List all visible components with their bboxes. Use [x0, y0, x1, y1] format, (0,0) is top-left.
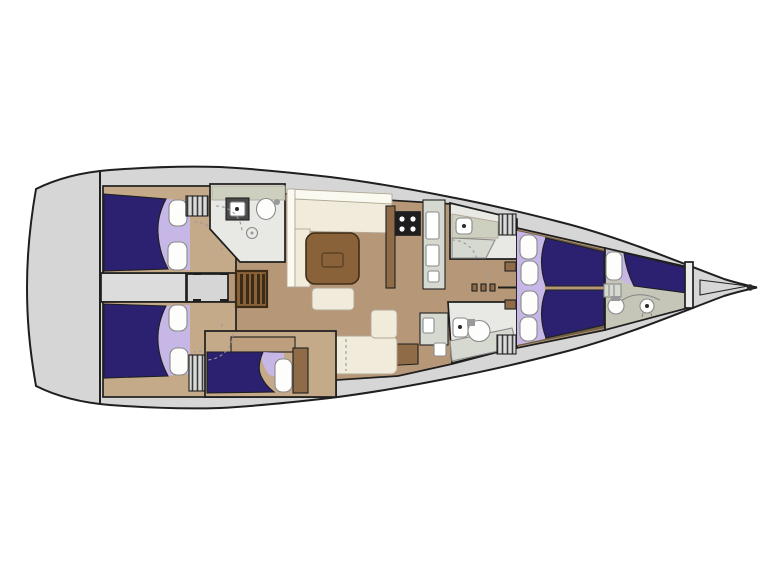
appliance-box	[434, 343, 446, 356]
appliance-box	[426, 212, 439, 239]
ottoman	[312, 288, 354, 310]
deck-hatch	[186, 196, 208, 216]
mid-cabin-shelf	[231, 337, 295, 352]
aft-cabin-starboard-berth	[104, 304, 168, 378]
toilet	[257, 199, 276, 220]
stair-slat	[257, 274, 260, 304]
cabinet-divider	[386, 206, 395, 288]
berth-pillow	[520, 235, 537, 259]
door-tick	[472, 284, 477, 291]
settee-seat-top	[295, 199, 392, 233]
burner	[399, 226, 404, 231]
appliance-box	[428, 271, 439, 282]
stair-slat	[262, 274, 265, 304]
engine-space	[101, 273, 186, 302]
toilet-cistern	[611, 296, 620, 301]
engine-hatch-box	[187, 274, 228, 302]
sink-drain-dot	[235, 207, 239, 211]
door-tick	[481, 284, 486, 291]
sink-drain-dot	[645, 304, 649, 308]
companionway-stairs	[236, 271, 267, 307]
berth-pillow	[168, 242, 187, 270]
toilet-cistern	[467, 319, 475, 326]
deck-hatch	[499, 214, 516, 235]
master-cabin	[505, 228, 605, 348]
burner	[399, 216, 404, 221]
nightstand	[505, 300, 516, 309]
stair-slat	[246, 274, 249, 304]
door-tick	[490, 284, 495, 291]
toilet-cistern	[274, 199, 280, 205]
berth-pillow	[170, 348, 188, 375]
forward-head	[448, 302, 517, 363]
burner	[410, 216, 415, 221]
berth-pillow	[521, 291, 538, 315]
bow-bulkhead	[685, 262, 693, 308]
mid-cabin	[205, 331, 336, 397]
aft-cabin-port-berth	[104, 194, 168, 271]
bow-fitting-dot	[747, 284, 753, 290]
settee-backrest-left	[287, 189, 295, 287]
berth-pillow	[606, 252, 622, 280]
appliance-box	[423, 318, 434, 333]
deck-hatch	[189, 355, 206, 391]
yacht-floor-plan	[0, 0, 768, 576]
shower-drain-dot	[251, 232, 254, 235]
berth-pillow	[169, 200, 187, 226]
floor-plan-canvas	[0, 0, 768, 576]
burner	[410, 226, 415, 231]
crew-steps	[604, 284, 621, 297]
appliance-box	[426, 245, 439, 266]
stair-slat	[251, 274, 254, 304]
chaise-arm	[371, 310, 397, 338]
mid-cabin-locker	[293, 348, 308, 393]
saloon-table	[306, 233, 359, 284]
sink-drain-dot	[458, 325, 462, 329]
stair-slat	[240, 274, 243, 304]
berth-pillow	[520, 317, 537, 341]
nightstand	[505, 262, 516, 271]
berth-pillow	[521, 261, 538, 285]
sink-drain-dot	[462, 224, 466, 228]
deck-hatch	[497, 335, 516, 354]
stove	[396, 212, 420, 235]
berth-pillow	[275, 359, 292, 392]
engine-space-group	[101, 271, 228, 303]
berth-pillow	[169, 305, 187, 331]
